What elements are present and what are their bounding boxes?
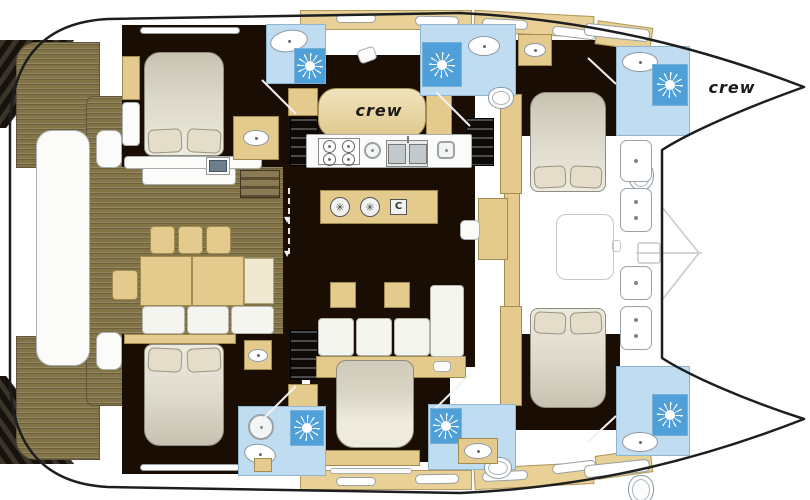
burner-glyph: ✳	[335, 202, 344, 213]
pillow	[533, 311, 566, 335]
catamaran-floorplan: ✳ ✳ C ▼ ▼	[0, 0, 810, 500]
cushion	[142, 306, 185, 334]
pillow	[186, 128, 221, 154]
arrow-down-icon: ▼	[284, 250, 290, 258]
cushion	[187, 306, 230, 334]
hull-window	[140, 27, 240, 34]
tv-icon	[206, 157, 230, 175]
headboard	[124, 334, 236, 344]
cockpit-stool	[112, 270, 138, 300]
vanity-cabinet	[233, 116, 279, 160]
chart-table	[478, 198, 508, 260]
cockpit-stairs	[240, 170, 280, 198]
shower-tray	[248, 414, 274, 440]
sink-icon	[243, 130, 269, 146]
appliance-icon	[437, 141, 455, 159]
deck-hatch	[336, 477, 376, 486]
cockpit-stool	[206, 226, 231, 254]
burner-glyph: ✳	[365, 202, 374, 213]
bed-foot-step	[330, 468, 412, 474]
hull-window	[140, 464, 240, 471]
double-sink-icon	[386, 140, 428, 167]
sink-icon	[622, 432, 658, 452]
cushion	[394, 318, 430, 356]
shower-sun-icon	[297, 53, 323, 79]
shower-stall	[652, 394, 688, 436]
pillow	[533, 165, 566, 189]
burner	[342, 153, 355, 166]
pillow	[147, 347, 182, 373]
vanity-cabinet	[244, 340, 272, 370]
cabin-shelf	[500, 306, 522, 406]
grill-icon: C	[390, 199, 407, 215]
shower-sun-icon	[657, 402, 683, 428]
crew-label-midship: crew	[336, 101, 422, 120]
cockpit-stool	[178, 226, 203, 254]
sink-basin	[388, 144, 406, 164]
deck-locker	[620, 266, 652, 300]
sofa-drawer	[433, 361, 451, 372]
pillow	[186, 347, 221, 373]
burner	[323, 153, 336, 166]
sink-icon	[248, 349, 268, 362]
burner	[323, 140, 336, 153]
saloon-stool	[330, 282, 356, 308]
forward-window-latch	[612, 240, 621, 252]
forward-window	[556, 214, 614, 280]
cabin-shelf	[500, 94, 522, 194]
companionway-steps	[290, 330, 318, 380]
cushion	[356, 318, 392, 356]
pillow	[569, 165, 602, 189]
sink-basin	[409, 144, 427, 164]
wardrobe	[288, 88, 318, 116]
sofa-corner-cushion	[430, 285, 464, 357]
grill-glyph: C	[395, 202, 402, 212]
shower-sun-icon	[294, 415, 320, 441]
saloon-stool	[384, 282, 410, 308]
deck-hatch	[336, 14, 376, 23]
bed-foot-cabinet	[322, 450, 420, 466]
shower-stall	[422, 42, 462, 87]
bath-cabinet	[254, 458, 272, 472]
shower-sun-icon	[429, 52, 455, 78]
shower-stall	[294, 48, 326, 84]
deck-locker	[620, 188, 652, 232]
cockpit-table-leaf	[244, 258, 274, 304]
toilet-icon	[628, 475, 654, 500]
deck-locker	[620, 306, 652, 350]
aft-bench	[36, 130, 90, 366]
shower-sun-icon	[657, 72, 683, 98]
crew-label-bow: crew	[700, 78, 764, 97]
transom-seat-top	[96, 130, 122, 168]
sofa-cushions	[318, 318, 430, 356]
double-bed-center	[336, 360, 414, 448]
bath-vanity	[458, 438, 498, 464]
stove-icon	[318, 138, 360, 165]
faucet-icon	[407, 136, 409, 143]
round-sink-icon	[364, 142, 381, 159]
pillow	[569, 311, 602, 335]
sink-icon	[464, 443, 492, 459]
cushion	[318, 318, 354, 356]
chart-stool	[460, 220, 480, 240]
deck-hatch	[415, 474, 459, 485]
cockpit-bench-cushions	[142, 306, 274, 334]
shower-sun-icon	[433, 413, 459, 439]
hob-burner-icon: ✳	[360, 197, 380, 217]
burner	[342, 140, 355, 153]
arrow-down-icon: ▼	[284, 216, 290, 224]
cabin-shelf	[122, 56, 140, 100]
cockpit-stool	[150, 226, 175, 254]
toilet-icon	[488, 87, 514, 109]
pillow	[147, 128, 182, 154]
cabin-shelf	[122, 102, 140, 146]
sink-icon	[468, 36, 500, 56]
bath-cabinet	[518, 34, 552, 66]
sink-icon	[524, 43, 546, 57]
cushion	[231, 306, 274, 334]
cockpit-table	[192, 256, 244, 306]
cockpit-table	[140, 256, 192, 306]
shower-stall	[290, 410, 324, 446]
transom-seat-bottom	[96, 332, 122, 370]
shower-stall	[652, 64, 688, 106]
hob-burner-icon: ✳	[330, 197, 350, 217]
deck-locker	[620, 140, 652, 182]
